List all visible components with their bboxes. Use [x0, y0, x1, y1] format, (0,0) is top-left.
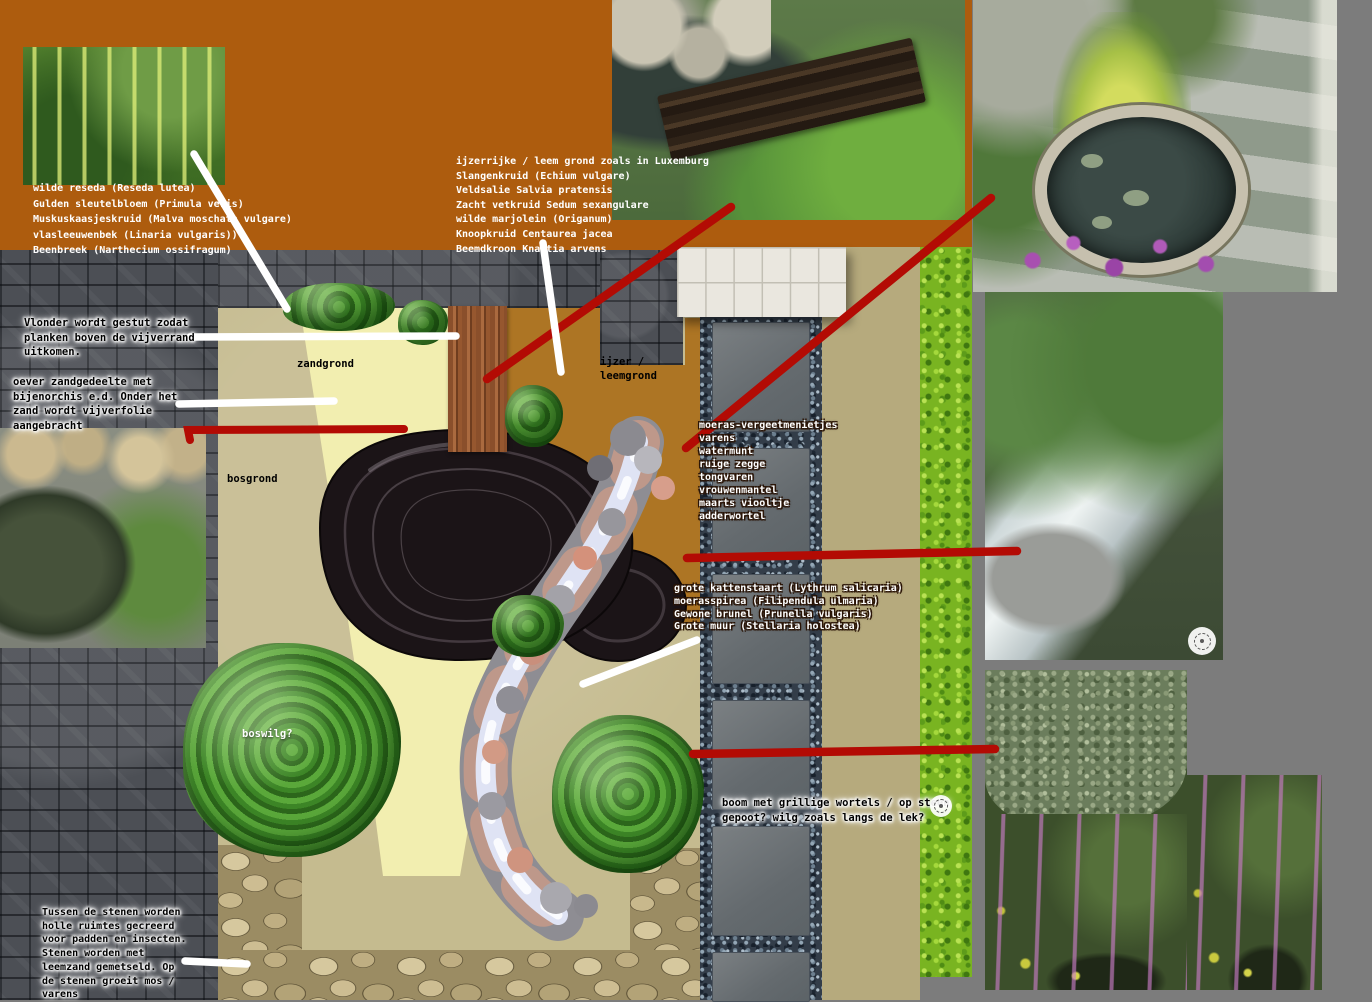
label-ijzer-leemgrond: ijzer / leemgrond	[600, 356, 657, 383]
garden-plan-collage: { "colors": { "orange_block": "#ad5c0e",…	[0, 0, 1372, 1000]
luxemburg-plant-list: ijzerrijke / leem grond zoals in Luxembu…	[456, 155, 709, 257]
photo-willow-crown	[985, 670, 1187, 824]
label-bosgrond: bosgrond	[227, 473, 278, 487]
boom-note: boom met grillige wortels / op steen gep…	[722, 796, 950, 825]
bush-top	[283, 283, 395, 331]
label-boswilg: boswilg?	[242, 728, 293, 740]
stone-wall-bottom	[218, 950, 700, 1000]
stream-tree	[552, 715, 704, 873]
photo-pond-alliums	[1002, 222, 1257, 292]
hedge-watermark-icon	[930, 795, 952, 817]
plan-hedge-strip	[920, 247, 972, 977]
boswilg-tree	[183, 643, 401, 857]
bush-by-deck	[505, 385, 563, 447]
path-slab	[712, 700, 810, 810]
white-tile-terrace	[677, 247, 846, 317]
kattenstaart-plant-list: grote kattenstaart (Lythrum salicaria) m…	[674, 583, 903, 634]
cobblestone-patch	[600, 250, 683, 365]
reseda-plant-list: wilde reseda (Reseda lutea) Gulden sleut…	[33, 181, 292, 259]
path-slab	[712, 952, 810, 1002]
photo-willow-loosestrife	[985, 814, 1187, 990]
vlonder-note: Vlonder wordt gestut zodat planken boven…	[24, 316, 195, 360]
path-slab	[712, 826, 810, 936]
photo-round-pond	[973, 0, 1337, 292]
photo-purple-pond	[1187, 775, 1322, 990]
moeras-plant-list: moeras-vergeetmenietjes varens watermunt…	[699, 419, 837, 523]
photo-willow	[985, 670, 1187, 990]
label-zandgrond: zandgrond	[297, 358, 354, 372]
photo-stream-ferns	[985, 292, 1223, 660]
stenen-note: Tussen de stenen worden holle ruimtes ge…	[42, 906, 187, 1002]
oever-note: oever zandgedeelte met bijenorchis e.d. …	[13, 375, 177, 433]
path-slab	[712, 322, 810, 432]
photo-rocky-pond	[0, 428, 206, 648]
wooden-deck-vlonder	[448, 306, 507, 452]
photo-watermark-icon	[1188, 627, 1216, 655]
photo-wilde-reseda	[23, 47, 225, 185]
bush-by-pond	[492, 595, 564, 657]
bush-small-top	[398, 300, 448, 345]
